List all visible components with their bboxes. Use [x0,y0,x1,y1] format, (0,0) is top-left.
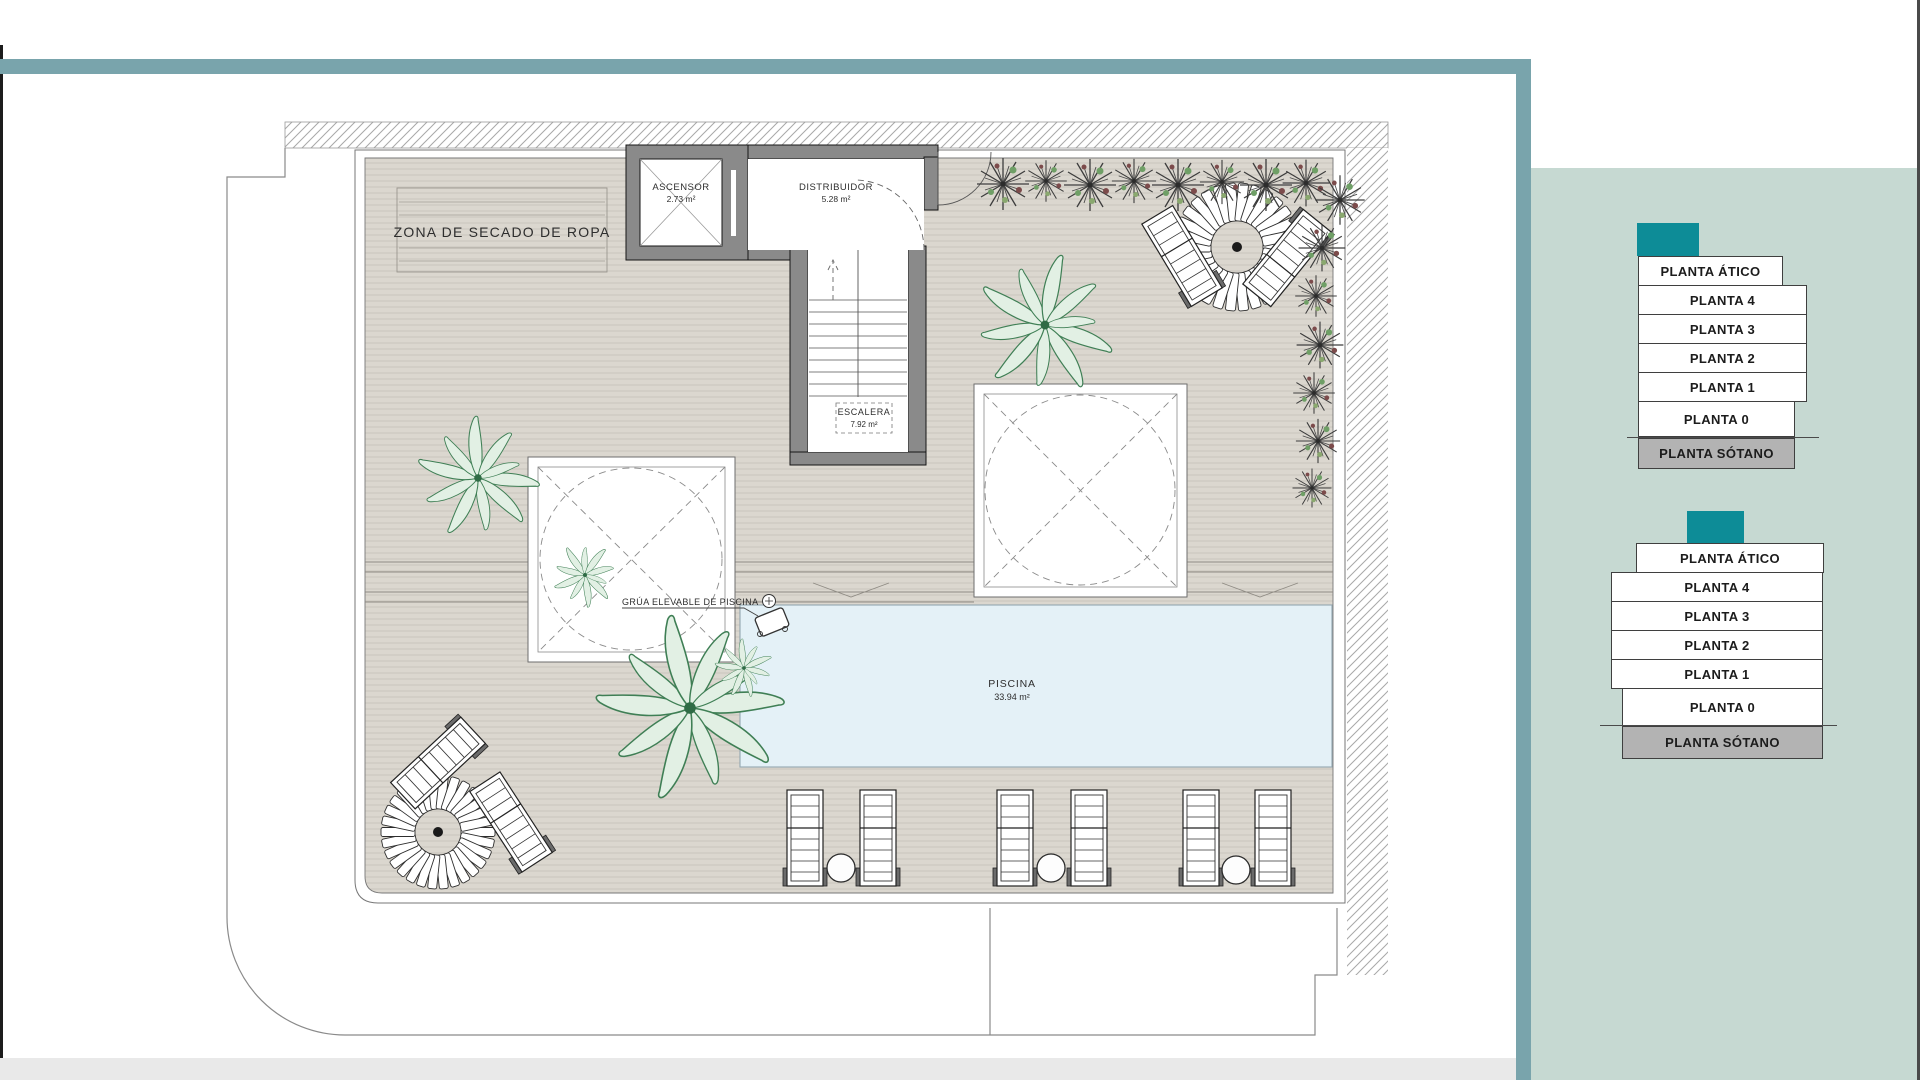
crane-label: GRÚA ELEVABLE DE PISCINA [622,597,758,607]
skylight-right [974,384,1187,597]
building-b-floor-0[interactable]: PLANTA 0 [1622,688,1823,726]
pool-label: PISCINA [988,678,1036,690]
pool-area-label: 33.94 m² [994,692,1030,702]
building-a-floor-3[interactable]: PLANTA 3 [1638,314,1807,344]
building-a-roof-cap [1637,223,1699,256]
right-hatch-band [1347,148,1388,975]
hall-label: DISTRIBUIDOR [799,182,873,193]
elevator-area-label: 2.73 m² [667,194,696,204]
hall-area-label: 5.28 m² [822,194,851,204]
building-a-floor-0[interactable]: PLANTA 0 [1638,401,1795,437]
building-b-floor-2[interactable]: PLANTA 2 [1611,630,1823,660]
building-a-floor-4[interactable]: PLANTA 4 [1638,285,1807,315]
building-b-roof-cap [1687,511,1744,544]
building-a-floor-2[interactable]: PLANTA 2 [1638,343,1807,373]
building-b-floor-4[interactable]: PLANTA 4 [1611,572,1823,602]
hall-floor [748,159,924,250]
top-hatch-band [285,122,1388,148]
drying-zone-label: ZONA DE SECADO DE ROPA [394,224,611,240]
building-a-floor-sotano[interactable]: PLANTA SÓTANO [1638,438,1795,469]
building-b-floor-sotano[interactable]: PLANTA SÓTANO [1622,726,1823,759]
building-b-floor-atico[interactable]: PLANTA ÁTICO [1636,543,1824,573]
page: ZONA DE SECADO DE ROPA PISCINA 33.94 m² [0,0,1920,1080]
building-b-floor-3[interactable]: PLANTA 3 [1611,601,1823,631]
building-a-floor-atico[interactable]: PLANTA ÁTICO [1638,256,1783,286]
pool [740,605,1332,767]
roof-floor-plan: ZONA DE SECADO DE ROPA PISCINA 33.94 m² [0,0,1920,1080]
skylight-left [528,457,735,662]
stairs-label: ESCALERA [838,407,891,417]
building-a-floor-1[interactable]: PLANTA 1 [1638,372,1807,402]
elevator-label: ASCENSOR [652,182,709,193]
stairs-area-label: 7.92 m² [850,420,877,429]
building-b-floor-1[interactable]: PLANTA 1 [1611,659,1823,689]
